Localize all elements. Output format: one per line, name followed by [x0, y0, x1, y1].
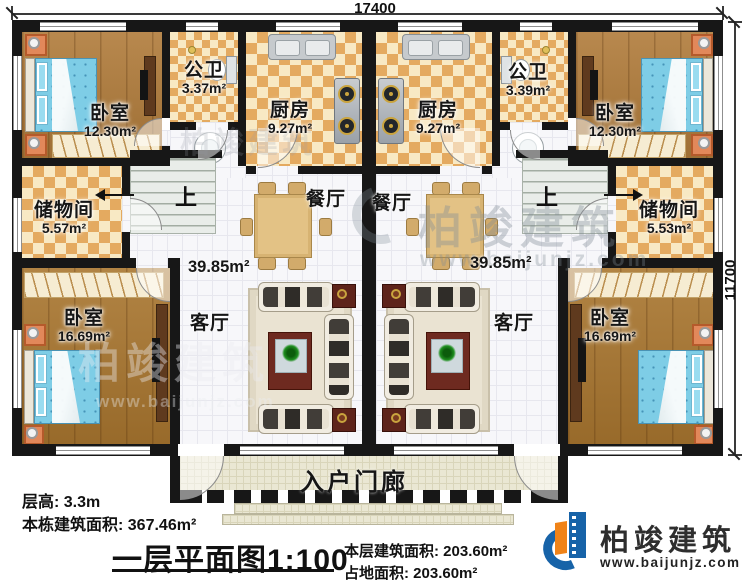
room-label-bedroom-top-left: 卧室 12.30m² [60, 103, 160, 140]
porch-label: 入户门廊 [300, 462, 408, 497]
speaker-icon [391, 289, 401, 299]
burner-icon [382, 117, 400, 135]
watermark: www.baijunjz.com [96, 392, 275, 412]
pillow [692, 355, 702, 383]
window [240, 446, 344, 455]
tv-cabinet [332, 284, 356, 308]
brand-website: www.baijunjz.com [600, 555, 741, 570]
sink-basin [275, 40, 300, 56]
interior-wall [122, 158, 130, 196]
dining-table [254, 194, 312, 258]
window [714, 56, 723, 130]
room-area: 16.69m² [34, 329, 134, 345]
window [714, 330, 723, 408]
window [13, 56, 22, 130]
window [186, 22, 218, 31]
room-name: 公卫 [492, 62, 564, 83]
floor-plan-page: 柏竣建筑 柏竣建筑 www.baijunjz.com 柏竣建筑 www.baij… [0, 0, 750, 583]
nightstand [25, 34, 47, 56]
tv-cabinet [382, 284, 406, 308]
water-heater-icon [188, 46, 196, 54]
sofa-cushions [263, 409, 329, 429]
sofa-cushions [263, 287, 329, 307]
chair [258, 257, 276, 270]
room-area: 5.57m² [22, 221, 106, 237]
brand-name: 柏竣建筑 [600, 517, 736, 559]
room-name: 厨房 [252, 100, 328, 121]
interior-wall [12, 258, 130, 268]
pillow [36, 355, 46, 383]
chair [319, 218, 332, 236]
living-area-value-left: 39.85m² [188, 258, 249, 277]
kitchen-sink [402, 34, 470, 60]
pillow [37, 96, 47, 124]
brand-logo-icon [543, 508, 595, 576]
burner-icon [338, 117, 356, 135]
pillow [691, 96, 701, 124]
building-area-note: 本栋建筑面积: 367.46m² [22, 511, 196, 535]
room-name: 卧室 [60, 103, 160, 124]
room-label-kitchen-right: 厨房 9.27m² [400, 100, 476, 137]
interior-wall [130, 258, 136, 268]
room-area: 12.30m² [60, 124, 160, 140]
room-name: 卧室 [565, 103, 665, 124]
bed-headboard [24, 350, 34, 424]
burner-icon [382, 85, 400, 103]
tv-cabinet [382, 408, 406, 432]
room-area: 3.39m² [492, 83, 564, 99]
pillow [36, 388, 46, 416]
floor-height-note: 层高: 3.3m [22, 488, 100, 512]
lamp-icon [26, 427, 38, 439]
room-area: 16.69m² [560, 329, 660, 345]
sofa-cushions [409, 287, 475, 307]
lamp-icon [28, 137, 40, 149]
sink-basin [305, 40, 330, 56]
room-label-bedroom-top-right: 卧室 12.30m² [565, 103, 665, 140]
logo-orange-block [555, 521, 567, 555]
interior-wall [568, 158, 723, 166]
room-label-kitchen-left: 厨房 9.27m² [252, 100, 328, 137]
watermark: www.baijunjz.com [420, 248, 649, 272]
chair [240, 218, 253, 236]
window [56, 446, 150, 455]
sofa-cushions [389, 319, 409, 395]
pillow [691, 63, 701, 91]
room-area: 5.53m² [627, 221, 711, 237]
nightstand [691, 34, 713, 56]
chair [288, 257, 306, 270]
window [398, 22, 462, 31]
room-label-living-right: 客厅 [494, 308, 534, 335]
logo-windows [572, 516, 576, 554]
stairs-up-label-left: 上 [175, 180, 197, 212]
stove [334, 78, 360, 144]
tv [140, 70, 148, 100]
room-name: 卧室 [560, 308, 660, 329]
interior-wall [298, 166, 362, 174]
lamp-icon [28, 37, 40, 49]
stairs-up-label-right: 上 [536, 180, 558, 212]
water-heater-icon [542, 46, 550, 54]
nightstand [24, 425, 44, 445]
interior-wall [482, 166, 492, 174]
sofa [404, 282, 480, 312]
dimension-value-top: 17400 [340, 0, 410, 17]
room-label-living-left: 客厅 [190, 308, 230, 335]
sofa-cushions [409, 409, 475, 429]
burner-icon [338, 85, 356, 103]
window [394, 446, 498, 455]
bedroom-bottom-right-furniture [568, 268, 716, 445]
lamp-icon [699, 327, 711, 339]
sofa-cushions [329, 319, 349, 395]
bed-headboard [703, 58, 713, 132]
tv-cabinet [332, 408, 356, 432]
coffee-table [426, 332, 470, 390]
drawing-title: 一层平面图1:100 [112, 535, 349, 579]
nightstand [692, 324, 714, 346]
room-label-storage-right: 储物间 5.53m² [627, 200, 711, 237]
pillow [37, 63, 47, 91]
interior-wall [376, 166, 440, 174]
room-area: 12.30m² [565, 124, 665, 140]
room-label-storage-left: 储物间 5.57m² [22, 200, 106, 237]
interior-wall [12, 158, 170, 166]
bed-headboard [25, 58, 35, 132]
porch-wing-wall-left [170, 456, 180, 503]
entry-door-opening-right [514, 444, 560, 456]
lamp-icon [698, 37, 710, 49]
window [13, 198, 22, 252]
porch-wing-wall-right [558, 456, 568, 503]
room-name: 公卫 [168, 60, 240, 81]
sofa [384, 314, 414, 400]
sofa [258, 282, 334, 312]
room-label-dining-left: 餐厅 [306, 184, 346, 211]
lamp-icon [698, 137, 710, 149]
tv [590, 70, 598, 100]
room-name: 卧室 [34, 308, 134, 329]
porch-step-2 [222, 514, 514, 525]
nightstand [694, 425, 714, 445]
interior-wall [558, 258, 568, 445]
plant-icon [282, 344, 300, 362]
window [40, 22, 126, 31]
interior-wall [500, 122, 510, 130]
pillow [692, 388, 702, 416]
speaker-icon [391, 413, 401, 423]
sofa-set-right [380, 282, 492, 434]
footprint-area-note: 占地面积: 203.60m² [344, 562, 477, 583]
nightstand [691, 134, 713, 156]
window [276, 22, 340, 31]
coffee-table [268, 332, 312, 390]
living-area-value-right: 39.85m² [470, 254, 531, 273]
window [520, 22, 552, 31]
speaker-icon [337, 289, 347, 299]
speaker-icon [337, 413, 347, 423]
nightstand [25, 134, 47, 156]
room-label-bathroom-left: 公卫 3.37m² [168, 60, 240, 97]
room-area: 3.37m² [168, 81, 240, 97]
sofa [324, 314, 354, 400]
watermark: 柏竣建筑 [418, 192, 622, 256]
plant-icon [438, 344, 456, 362]
interior-wall [492, 32, 500, 166]
room-label-dining-right: 餐厅 [372, 188, 412, 215]
window [588, 446, 682, 455]
entry-door-opening-left [178, 444, 224, 456]
room-name: 储物间 [627, 200, 711, 221]
sofa [404, 404, 480, 434]
window [714, 198, 723, 252]
sink-basin [408, 40, 433, 56]
interior-wall [246, 166, 256, 174]
room-name: 厨房 [400, 100, 476, 121]
interior-wall [608, 158, 616, 196]
room-name: 储物间 [22, 200, 106, 221]
room-label-bathroom-right: 公卫 3.39m² [492, 62, 564, 99]
sink-basin [438, 40, 463, 56]
floor-area-note: 本层建筑面积: 203.60m² [344, 540, 507, 561]
room-area: 9.27m² [400, 121, 476, 137]
room-label-bedroom-bottom-left: 卧室 16.69m² [34, 308, 134, 345]
room-label-bedroom-bottom-right: 卧室 16.69m² [560, 308, 660, 345]
lamp-icon [700, 427, 712, 439]
window [13, 330, 22, 408]
kitchen-sink [268, 34, 336, 60]
dimension-value-right: 11700 [722, 250, 738, 310]
porch-step-1 [234, 503, 502, 514]
dimension-line-right [734, 22, 736, 455]
room-area: 9.27m² [252, 121, 328, 137]
title-underline [112, 569, 334, 572]
window [612, 22, 698, 31]
